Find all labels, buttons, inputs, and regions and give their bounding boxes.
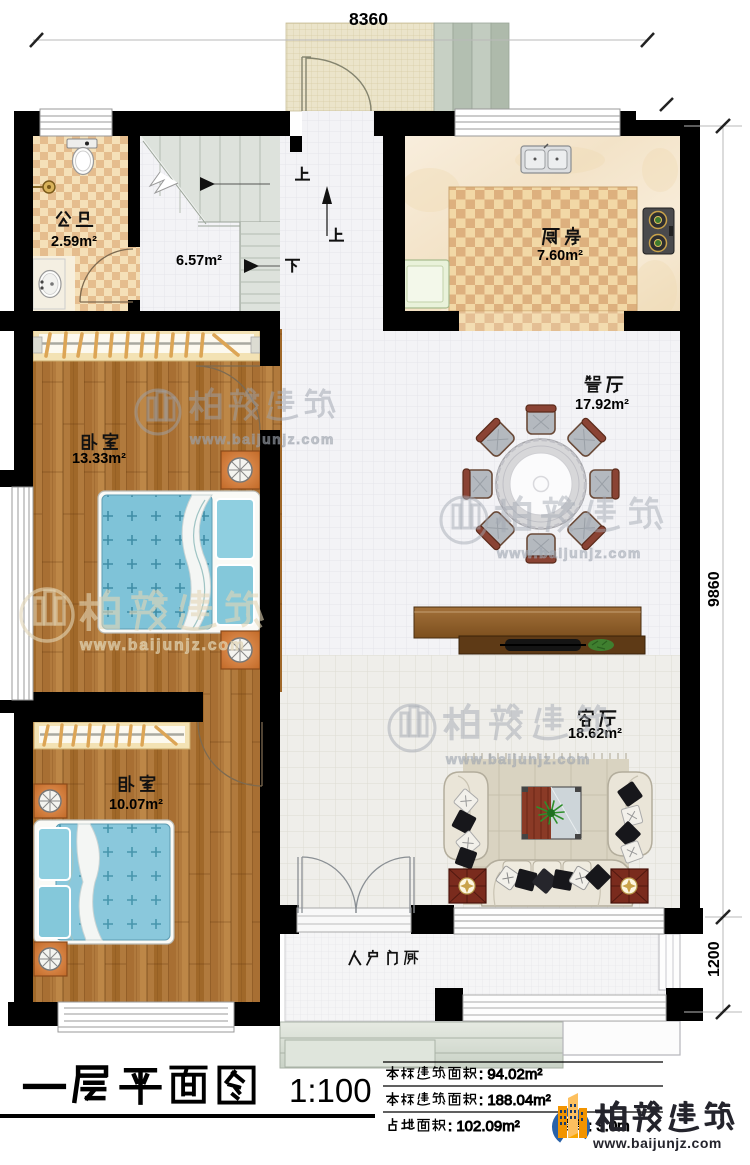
svg-text:www.baijunjz.com: www.baijunjz.com [592,1135,722,1151]
svg-text:www.baijunjz.com: www.baijunjz.com [496,545,642,561]
svg-text:1:100: 1:100 [289,1072,372,1109]
svg-text:www.baijunjz.com: www.baijunjz.com [79,637,246,654]
svg-text:9860: 9860 [706,571,723,607]
svg-text:: 188.04m²: : 188.04m² [479,1092,551,1109]
svg-text:: 94.02m²: : 94.02m² [479,1066,542,1083]
svg-text:: 102.09m²: : 102.09m² [448,1118,520,1135]
svg-text:2.59m²: 2.59m² [51,234,97,250]
svg-text:10.07m²: 10.07m² [109,797,163,813]
svg-text:8360: 8360 [349,9,388,29]
svg-text:www.baijunjz.com: www.baijunjz.com [189,431,335,447]
svg-text:6.57m²: 6.57m² [176,253,222,269]
svg-text:1200: 1200 [706,941,723,977]
svg-text:www.baijunjz.com: www.baijunjz.com [445,751,591,767]
svg-text:7.60m²: 7.60m² [537,248,583,264]
svg-text:13.33m²: 13.33m² [72,451,126,467]
svg-text:17.92m²: 17.92m² [575,397,629,413]
